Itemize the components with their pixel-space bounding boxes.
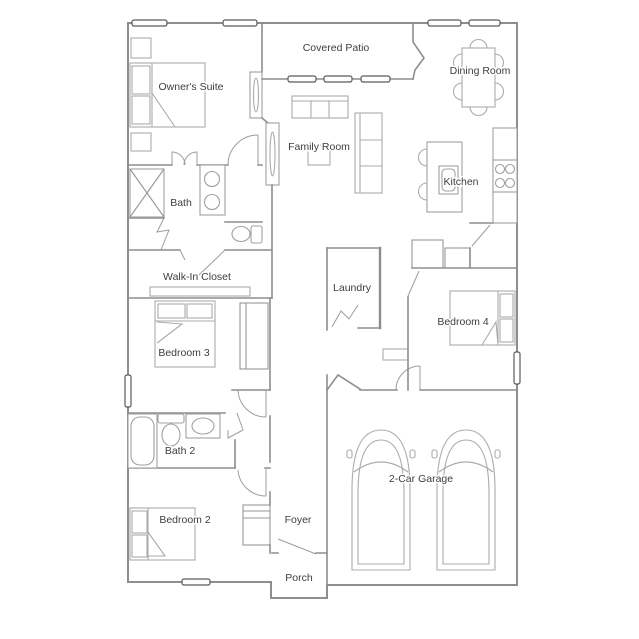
label-covered-patio: Covered Patio [303,42,370,54]
floor-plan-drawing: Owner's Suite Covered Patio Dining Room … [0,0,639,639]
interior-walls [128,23,517,585]
label-family-room: Family Room [288,141,350,153]
label-porch: Porch [285,572,313,584]
label-kitchen: Kitchen [443,176,478,188]
label-bedroom-4: Bedroom 4 [437,316,489,328]
room-labels: Owner's Suite Covered Patio Dining Room … [158,42,510,584]
label-walk-in-closet: Walk-In Closet [163,271,231,283]
garage-cars [347,430,500,570]
label-dining-room: Dining Room [450,65,511,77]
label-garage: 2-Car Garage [389,473,453,485]
label-laundry: Laundry [333,282,372,294]
owners-suite-furniture [130,38,205,151]
label-bath-2: Bath 2 [165,445,196,457]
bath2-fixtures [128,414,220,468]
dining-furniture [454,40,504,116]
label-foyer: Foyer [285,514,312,526]
windows [125,20,520,585]
label-bedroom-2: Bedroom 2 [159,514,211,526]
floor-plan-page: Owner's Suite Covered Patio Dining Room … [0,0,639,639]
exterior-walls [128,23,517,598]
owners-bath-fixtures [130,165,262,243]
label-bath: Bath [170,197,192,209]
label-owners-suite: Owner's Suite [158,81,223,93]
label-bedroom-3: Bedroom 3 [158,347,210,359]
